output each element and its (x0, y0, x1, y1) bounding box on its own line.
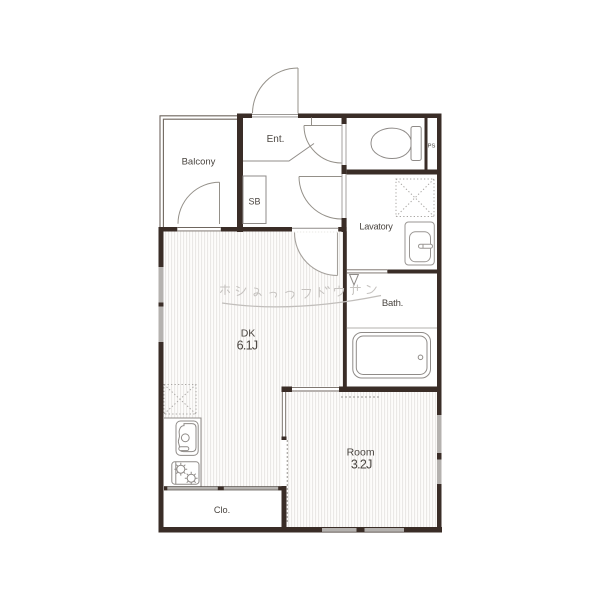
svg-text:Clo.: Clo. (214, 505, 230, 515)
svg-text:3.2J: 3.2J (351, 458, 372, 472)
svg-text:Lavatory: Lavatory (359, 222, 393, 232)
svg-text:Bath.: Bath. (382, 298, 403, 309)
svg-text:Balcony: Balcony (182, 157, 216, 168)
svg-text:6.1J: 6.1J (237, 339, 258, 353)
svg-text:Ent.: Ent. (267, 134, 285, 145)
svg-text:PS: PS (428, 143, 436, 149)
svg-text:SB: SB (248, 197, 260, 207)
